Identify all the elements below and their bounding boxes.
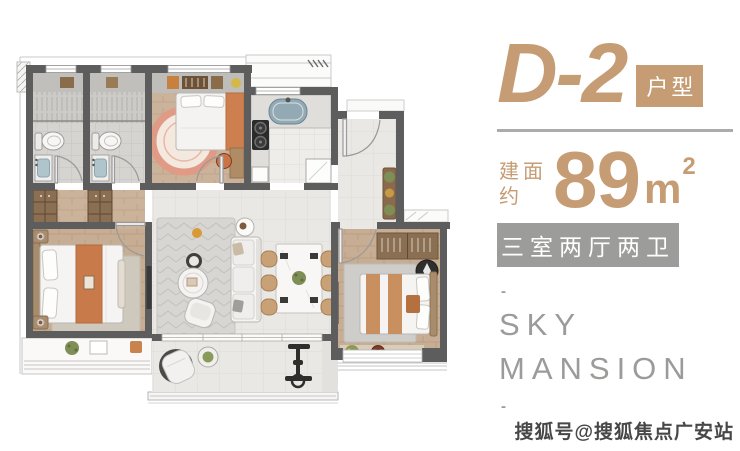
window [101,66,131,73]
bedroom-3-bay-window [343,350,422,362]
basket [106,77,118,88]
toilet-2 [92,132,121,150]
bed-3 [360,272,437,336]
area-value: 89 [553,146,640,214]
floorplan-drawing [0,0,480,451]
flowers [385,189,394,198]
shower-2 [90,92,145,123]
area-prefix: 建面 约 [499,160,547,210]
coffee-table [178,268,208,298]
decor [231,78,241,88]
plant [203,352,214,363]
area-label-2: 约 [499,185,547,210]
tv [147,266,152,309]
folded-blanket [406,295,420,313]
area-label-1: 建面 [499,160,547,185]
shower-1 [33,92,83,123]
plant [384,172,395,183]
unit-title-row: D-2 户型 [497,34,739,114]
master-bay-window [22,338,152,374]
window [46,66,76,73]
plant [65,341,79,355]
area-row: 建面 约 89 m2 [497,146,739,214]
layout-spec-badge: 三室两厅两卫 [497,223,679,267]
sofa [231,237,261,322]
balcony-railing [148,392,338,403]
sink-2 [92,155,109,181]
area-exponent: 2 [682,153,695,180]
bench [118,260,125,308]
dining-table [276,244,322,313]
wardrobe [377,233,438,259]
window [168,66,230,73]
dash-bottom: - [501,399,739,414]
decor [130,341,142,353]
floorplan-marketing-image: D-2 户型 建面 约 89 m2 三室两厅两卫 - SKY MANSION -… [0,0,740,451]
kitchen-sink [269,98,307,125]
brand-line-2: MANSION [499,350,739,387]
basket [60,77,74,88]
decor [192,228,202,238]
dash-top: - [501,284,739,299]
desk [230,148,244,178]
balcony-slider [162,334,322,341]
unit-name: D-2 [497,34,626,114]
brand-line-1: SKY [499,306,739,343]
area-unit: m2 [644,168,695,210]
window [256,88,300,95]
toilet-1 [35,132,64,150]
sohu-watermark: 搜狐号@搜狐焦点广安站 [514,417,734,444]
sink-1 [35,155,52,181]
unit-type-badge: 户型 [636,65,703,107]
info-panel: D-2 户型 建面 约 89 m2 三室两厅两卫 - SKY MANSION - [497,34,739,414]
entry-console [383,168,396,219]
tray [90,341,107,354]
plant [384,205,395,216]
divider-line [497,129,733,132]
appliance [252,167,268,182]
bed-2 [176,93,244,150]
stove [252,120,269,150]
book [84,276,94,289]
coffee-cup [240,223,247,230]
master-bed [33,243,123,325]
